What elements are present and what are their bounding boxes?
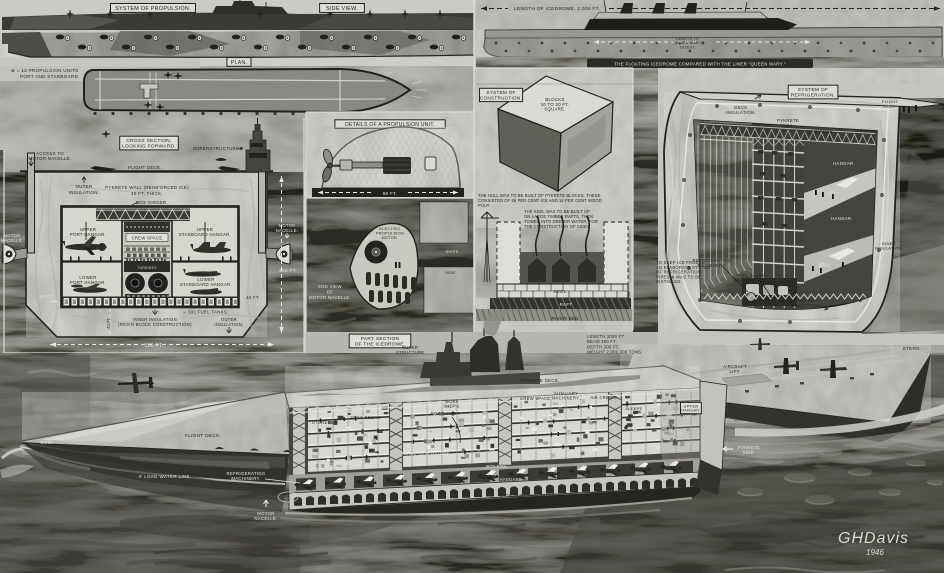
svg-text:OF: OF — [327, 289, 334, 294]
svg-text:↖ BOX GIRDER.: ↖ BOX GIRDER. — [798, 129, 835, 134]
svg-text:TURBO GENERATORS.: TURBO GENERATORS. — [401, 451, 451, 456]
svg-text:SYSTEM OF PROPULSION.: SYSTEM OF PROPULSION. — [115, 6, 191, 12]
svg-text:CREW SPACE.: CREW SPACE. — [520, 396, 552, 401]
svg-text:DETAILS OF A PROPULSION UN: DETAILS OF A PROPULSION UNIT. — [345, 122, 435, 128]
svg-text:INSULATION.: INSULATION. — [726, 110, 756, 115]
svg-text:NACELLE.: NACELLE. — [276, 228, 299, 233]
svg-text:REFRIGERATION.: REFRIGERATION. — [791, 93, 836, 99]
svg-text:STRUCTURE.: STRUCTURE. — [396, 350, 426, 355]
svg-text:INSULATION.: INSULATION. — [69, 190, 100, 195]
svg-text:STERN.: STERN. — [903, 346, 922, 351]
svg-text:PORT AND STARBOARD.: PORT AND STARBOARD. — [20, 74, 80, 79]
svg-text:40 FT.: 40 FT. — [39, 294, 52, 299]
svg-text:STARBOARD HANGAR.: STARBOARD HANGAR. — [179, 232, 231, 237]
svg-text:PORT HANGAR.: PORT HANGAR. — [70, 232, 106, 237]
svg-text:RAFT: RAFT — [560, 302, 573, 307]
svg-text:HULL.: HULL. — [781, 123, 795, 128]
svg-text:SUPERSTRUCTURE: SUPERSTRUCTURE — [193, 146, 239, 151]
svg-text:60 FT.: 60 FT. — [383, 191, 398, 196]
svg-text:DECK.: DECK. — [883, 103, 897, 108]
svg-text:GHDavis: GHDavis — [838, 530, 909, 547]
svg-text:40 FT.: 40 FT. — [246, 295, 259, 300]
svg-text:(RESIN BLOCK CONSTRUCTION): (RESIN BLOCK CONSTRUCTION) — [118, 322, 192, 327]
svg-text:AND BALLAST.: AND BALLAST. — [734, 278, 767, 283]
svg-text:SQUARE.: SQUARE. — [544, 107, 565, 112]
svg-text:SIDE.: SIDE. — [445, 271, 456, 275]
svg-text:ELECTRIC: ELECTRIC — [379, 227, 400, 231]
svg-text:MOTOR NACELLE.: MOTOR NACELLE. — [29, 156, 72, 161]
svg-text:→ OIL FUEL TANKS.: → OIL FUEL TANKS. — [182, 310, 229, 315]
svg-text:INSULATION.: INSULATION. — [214, 322, 243, 327]
svg-text:FLIGHT DECK.: FLIGHT DECK. — [128, 165, 162, 170]
svg-text:CREW SPACE: CREW SPACE — [132, 236, 163, 241]
svg-text:CONSTRUCTION.: CONSTRUCTION. — [480, 95, 522, 100]
svg-text:INSTALLED.: INSTALLED. — [656, 279, 682, 284]
svg-text:LIFT.: LIFT. — [729, 369, 740, 374]
svg-text:PROPULSION: PROPULSION — [376, 231, 404, 235]
svg-text:WEIGHT 2,000,000 TONS.: WEIGHT 2,000,000 TONS. — [587, 350, 643, 355]
svg-text:TURBINES: TURBINES — [137, 266, 157, 270]
svg-text:MACHINERY.: MACHINERY. — [552, 396, 580, 401]
svg-text:MOTOR NACELLE.: MOTOR NACELLE. — [309, 295, 351, 300]
svg-text:40 FT. THICK.: 40 FT. THICK. — [131, 191, 163, 196]
svg-text:PULP.: PULP. — [478, 203, 490, 208]
svg-text:SHIPS: SHIPS — [446, 250, 459, 254]
svg-text:HANGAR.: HANGAR. — [831, 216, 853, 221]
svg-text:4' LOAD WATER LINE.: 4' LOAD WATER LINE. — [138, 474, 191, 479]
svg-text:OF THE ICEDROME.: OF THE ICEDROME. — [355, 342, 406, 348]
svg-text:OUTER: OUTER — [76, 184, 93, 189]
svg-text:INSULATION.: INSULATION. — [875, 246, 903, 251]
svg-text:⊗ = 13 PROPULSION UNITS: ⊗ = 13 PROPULSION UNITS — [11, 68, 79, 73]
svg-text:PYKRETE WALL (REINFORCED ICE): PYKRETE WALL (REINFORCED ICE) — [105, 185, 189, 190]
svg-text:HANGAR.: HANGAR. — [681, 408, 701, 413]
svg-text:MESS DECKS.: MESS DECKS. — [350, 415, 381, 420]
svg-text:PYKRETE DECK.: PYKRETE DECK. — [520, 378, 559, 383]
svg-text:CROSS SECTION,: CROSS SECTION, — [126, 138, 171, 144]
svg-text:LENGTH OF ICEDROME, 2,000 FT.: LENGTH OF ICEDROME, 2,000 FT. — [514, 6, 600, 12]
svg-text:SYSTEM OF: SYSTEM OF — [798, 87, 828, 93]
svg-text:TANKS.: TANKS. — [521, 498, 538, 503]
svg-text:NACELLE.: NACELLE. — [254, 516, 277, 521]
svg-text:1946: 1946 — [866, 548, 884, 557]
svg-text:HANGAR.: HANGAR. — [330, 461, 351, 466]
svg-text:SIDE.: SIDE. — [743, 450, 756, 455]
svg-text:HANGAR.: HANGAR. — [833, 161, 855, 166]
svg-text:PORT HANGAR.: PORT HANGAR. — [70, 280, 106, 285]
svg-text:PLAN.: PLAN. — [231, 60, 248, 66]
svg-text:HANGAR.: HANGAR. — [500, 477, 521, 482]
svg-text:1018 FT.: 1018 FT. — [680, 45, 696, 49]
svg-text:BOX GIRDER.: BOX GIRDER. — [136, 200, 168, 205]
svg-text:SLEEPS: SLEEPS — [626, 406, 643, 411]
svg-text:MOTOR.: MOTOR. — [382, 236, 399, 240]
svg-text:AIR CREWS.: AIR CREWS. — [590, 395, 617, 400]
svg-text:END VIEW: END VIEW — [318, 284, 342, 289]
svg-text:STARBOARD HANGAR.: STARBOARD HANGAR. — [180, 282, 232, 287]
svg-text:300 FT.: 300 FT. — [145, 343, 164, 349]
svg-text:SHOPS.: SHOPS. — [443, 404, 460, 409]
svg-text:200 FT.: 200 FT. — [279, 268, 297, 274]
svg-text:BOILERS.: BOILERS. — [486, 464, 507, 469]
svg-text:BOW.: BOW. — [40, 440, 53, 445]
svg-text:PART SECTION: PART SECTION — [361, 336, 400, 342]
svg-text:BOX GIRDER.: BOX GIRDER. — [431, 411, 461, 416]
svg-text:SYSTEM OF: SYSTEM OF — [486, 90, 515, 95]
svg-text:KEEL: KEEL — [554, 289, 567, 294]
svg-text:INSULATION.: INSULATION. — [791, 303, 821, 308]
svg-text:MACHINERY.: MACHINERY. — [231, 476, 260, 481]
svg-text:SIDE VIEW.: SIDE VIEW. — [326, 6, 358, 12]
svg-text:CONSISTED OF 86 PER CENT ICE A: CONSISTED OF 86 PER CENT ICE AND 14 PER … — [478, 198, 602, 203]
svg-text:LOOKING FORWARD.: LOOKING FORWARD. — [122, 144, 176, 150]
svg-text:FLIGHT DECK.: FLIGHT DECK. — [185, 433, 222, 439]
svg-text:40 FT.: 40 FT. — [106, 317, 111, 329]
svg-text:THE FLOATING ICEDROME COMPA: THE FLOATING ICEDROME COMPARED WITH THE … — [614, 62, 786, 67]
svg-text:STORES.: STORES. — [312, 420, 332, 425]
